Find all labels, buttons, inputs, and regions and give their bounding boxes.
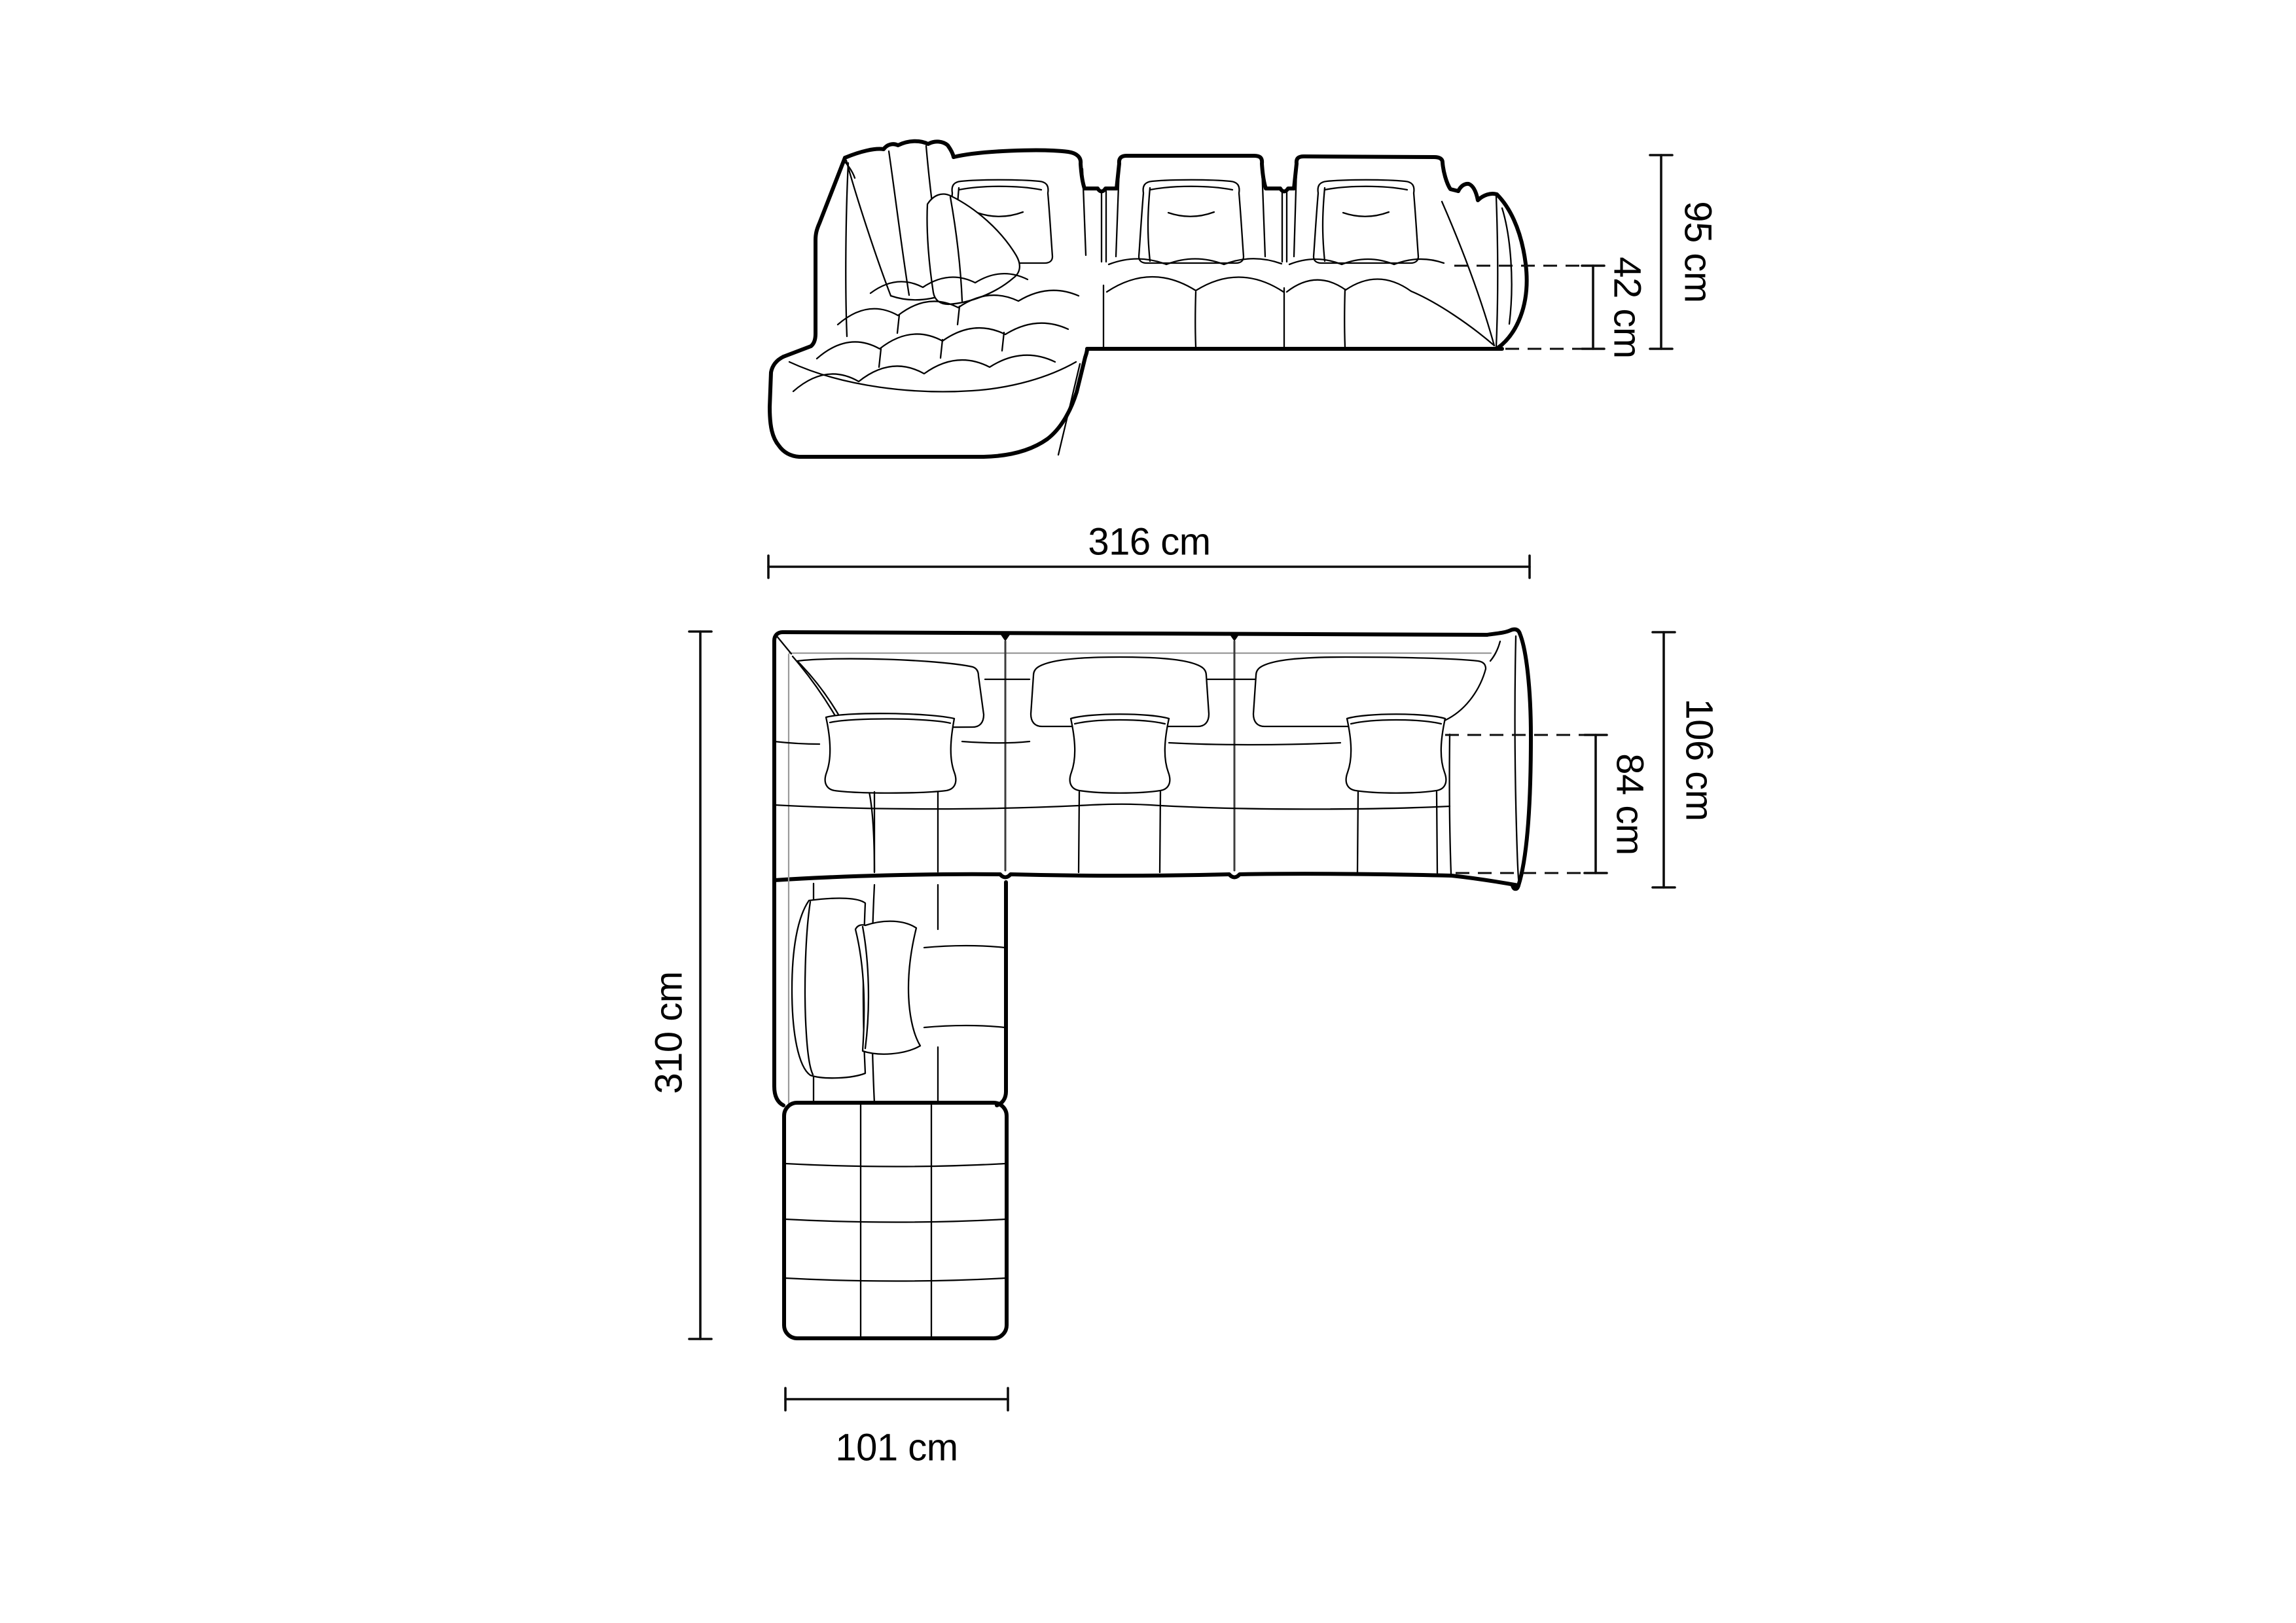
front-chaise [770,349,1087,457]
top-seat-depth-label: 84 cm [1609,753,1651,855]
dimension-annotations: 95 cm 42 cm 316 cm 106 cm 84 cm 310 cm 1… [648,155,1721,1469]
front-height-label: 95 cm [1677,201,1719,302]
dim-top-length [689,632,711,1339]
dim-top-depth [1653,632,1675,887]
dim-chaise-width [785,1388,1008,1410]
top-depth-label: 106 cm [1678,698,1721,821]
chaise-width-label: 101 cm [835,1427,958,1469]
top-width-label: 316 cm [1088,521,1210,563]
sofa-dimension-diagram: 95 cm 42 cm 316 cm 106 cm 84 cm 310 cm 1… [0,0,2296,1623]
front-view-drawing [770,141,1527,457]
top-corner-module [792,883,1005,1103]
top-view-drawing [774,630,1531,1338]
top-seat-pillows [825,713,1446,793]
top-chaise-module [784,1103,1007,1338]
front-seat-height-label: 42 cm [1606,257,1649,358]
dim-front-height [1650,155,1672,349]
front-back-cushions [948,180,1418,263]
dim-front-seat-height [1454,266,1604,349]
top-length-label: 310 cm [648,971,691,1094]
diagram-canvas: 95 cm 42 cm 316 cm 106 cm 84 cm 310 cm 1… [0,0,2296,1623]
